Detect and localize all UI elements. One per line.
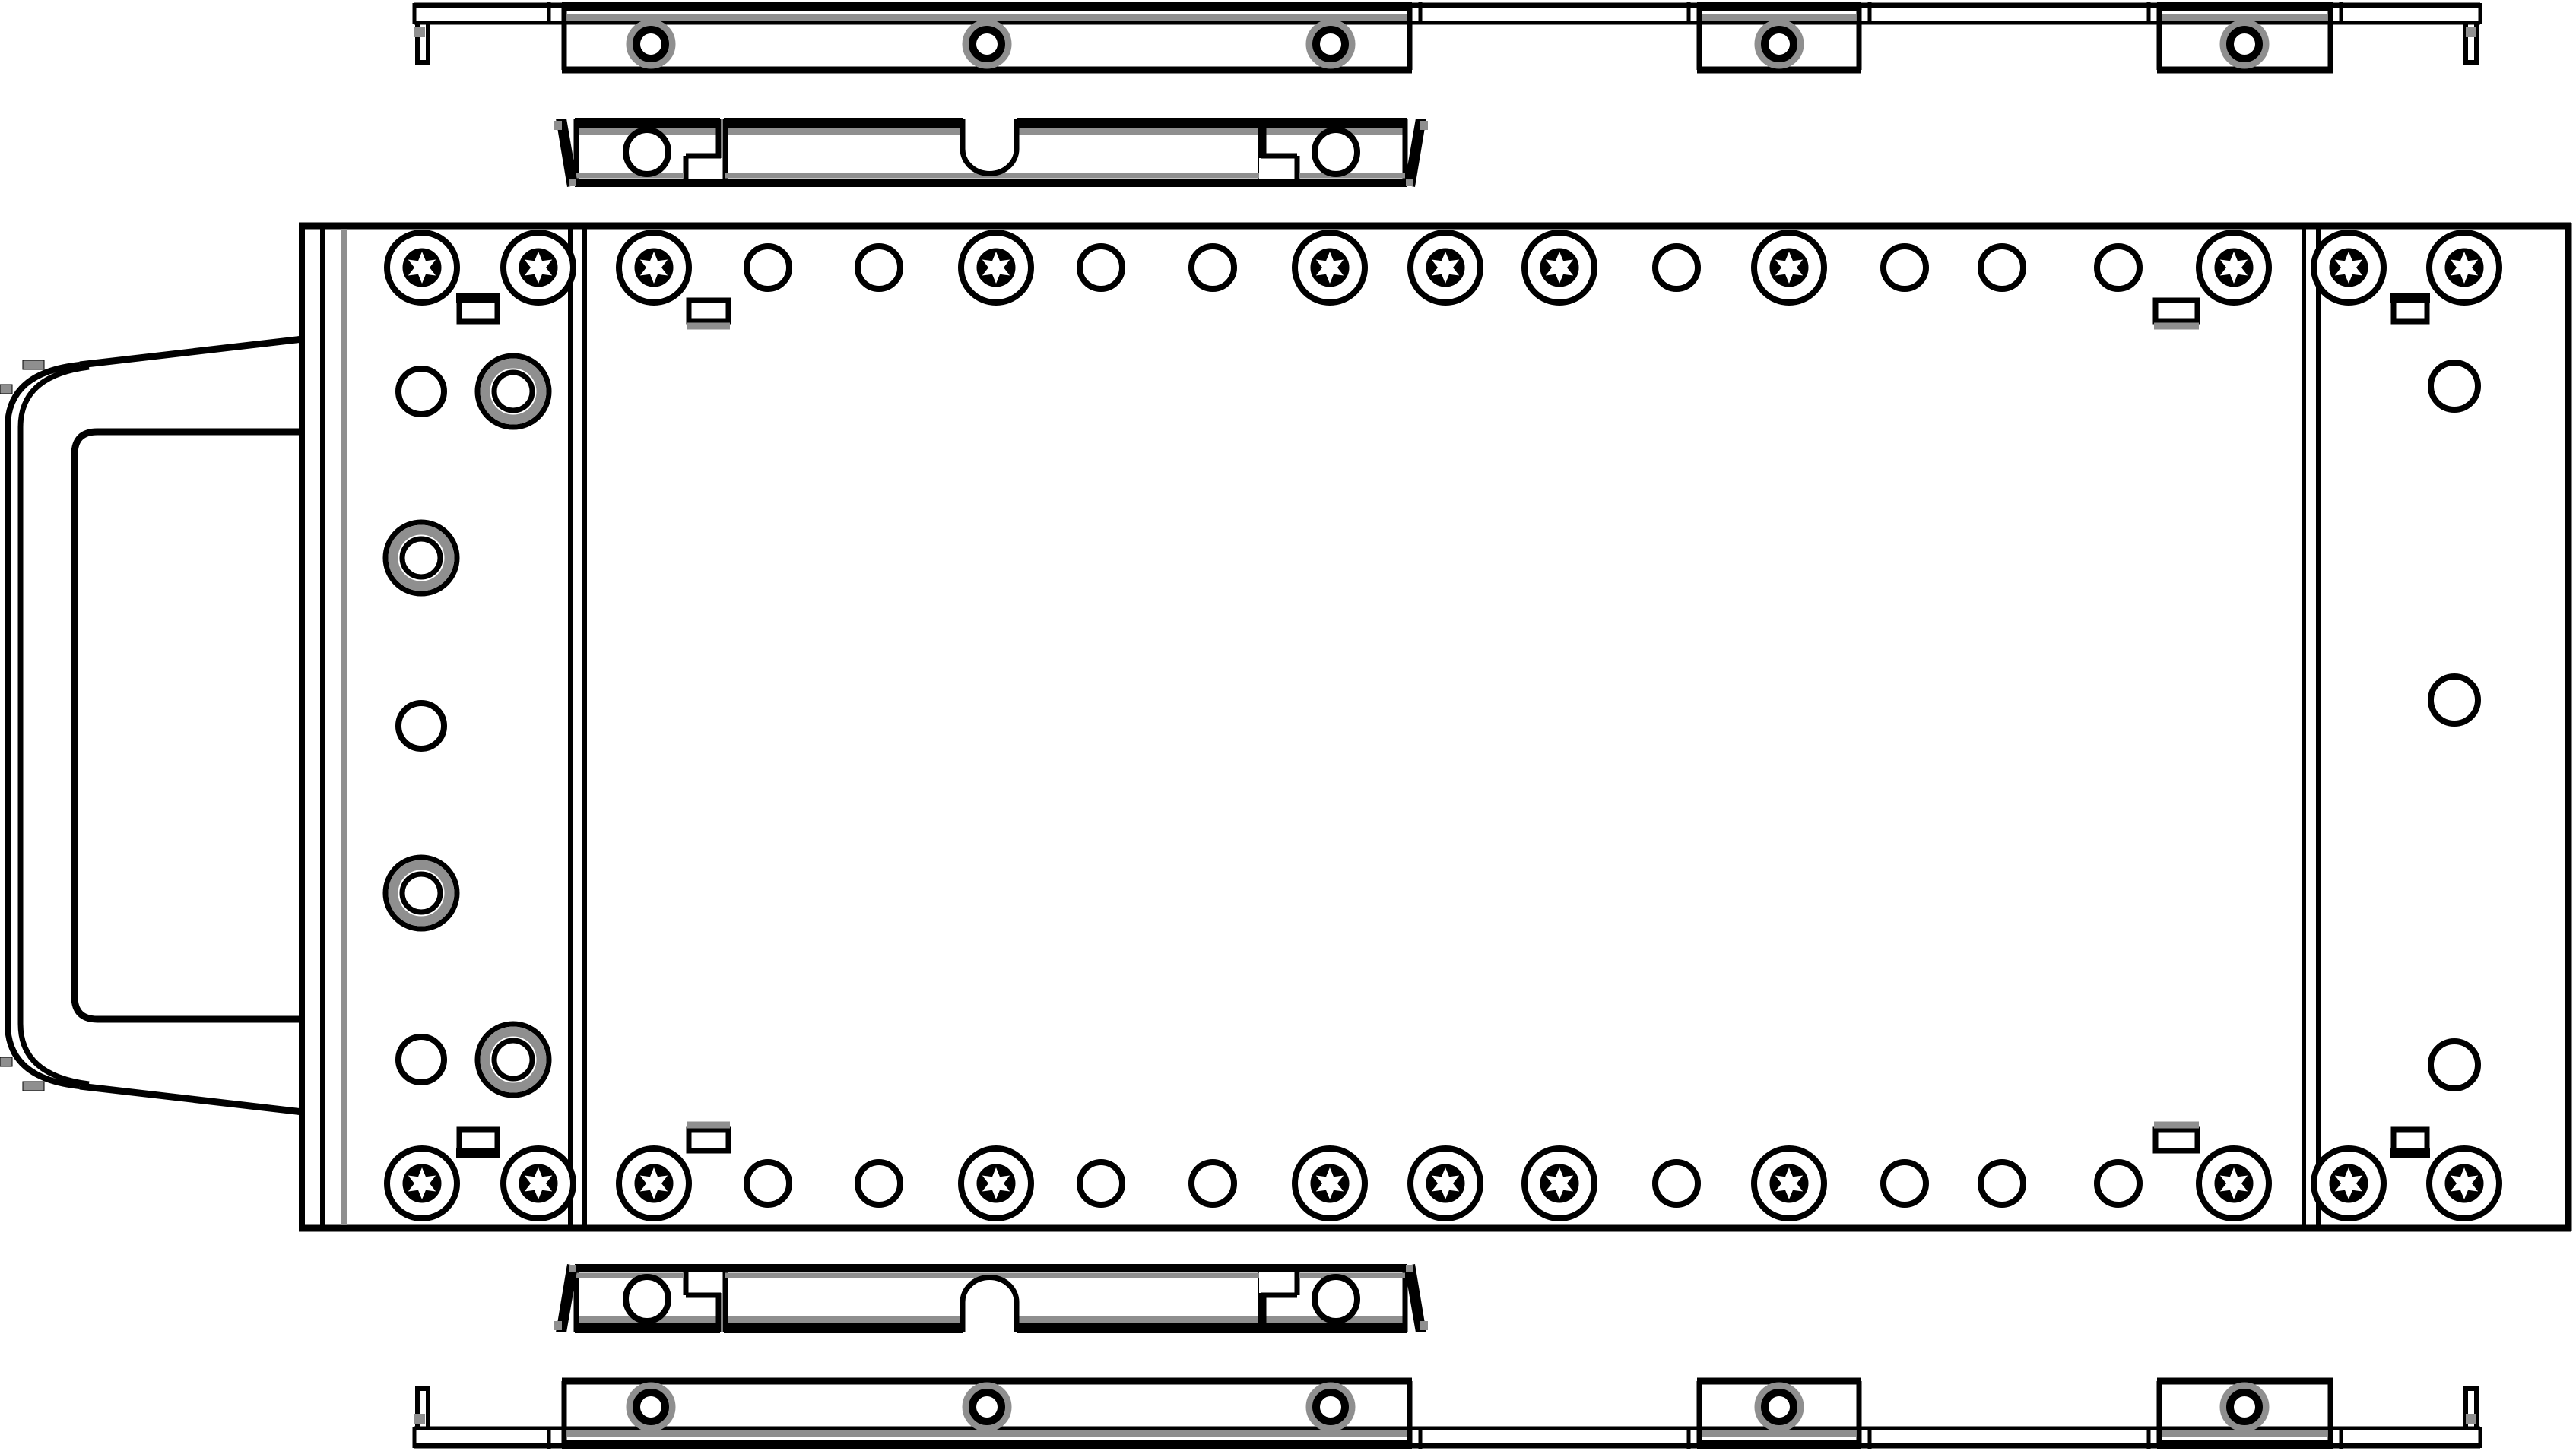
bracket-junction-tab: [687, 118, 720, 128]
torx-screw: [961, 233, 1031, 303]
bend-mark: [0, 385, 12, 394]
rail-tab-cap: [2157, 2, 2333, 11]
torx-screw: [1754, 1148, 1824, 1218]
bracket-center-plate: [724, 118, 1262, 182]
bracket-junction-tab: [1257, 1323, 1290, 1333]
torx-screw: [1524, 233, 1594, 303]
rail-grommet-bore: [972, 30, 1001, 59]
torx-screw: [2429, 1148, 2499, 1218]
torx-screw: [619, 1148, 689, 1218]
rail-grommet-bore: [1316, 30, 1345, 59]
slot-opening: [459, 300, 497, 322]
rail-tab: [1697, 2, 1861, 70]
mounting-rail: [414, 2, 2480, 70]
bracket-center-plate: [724, 1269, 1262, 1333]
rivet-hole: [1080, 246, 1122, 289]
panel-holes: [385, 356, 2478, 594]
rail-grommet-bore: [972, 1392, 1001, 1421]
rail-tab-cap: [1697, 1440, 1861, 1449]
torx-screw: [1295, 233, 1365, 303]
slot-cap: [2390, 1148, 2430, 1158]
rail-grommet: [630, 1386, 672, 1428]
bracket-cap: [724, 1323, 963, 1333]
panel-hole: [2431, 1041, 2478, 1088]
bracket-cap: [1017, 1323, 1262, 1333]
cable-slot: [456, 293, 500, 322]
boss-top-edge: [80, 339, 303, 365]
boss-bottom-edge: [80, 1086, 303, 1112]
bend-mark: [1420, 1321, 1428, 1330]
panel-hole: [398, 1037, 444, 1082]
clip-bracket: [554, 118, 1428, 187]
rail-grommet-bore: [1765, 1392, 1794, 1421]
slot-cap: [456, 1148, 500, 1158]
cable-slot: [2390, 1129, 2430, 1158]
bend-mark: [1406, 1265, 1413, 1272]
rail-grommet: [630, 23, 672, 65]
bracket-hole: [1315, 1277, 1357, 1321]
bracket-cap: [724, 118, 963, 128]
screw-row: [387, 233, 2499, 303]
torx-screw: [387, 233, 457, 303]
rail-tab-cap: [2157, 1440, 2333, 1449]
torx-screw: [1410, 1148, 1480, 1218]
rivet-hole: [858, 1162, 900, 1205]
rail-grommet: [2223, 23, 2266, 65]
rivet-hole: [858, 246, 900, 289]
rail-tab: [2157, 2, 2333, 70]
torx-screw: [503, 1148, 573, 1218]
chassis-assembly-drawing: [0, 0, 2576, 1451]
rivet-hole: [1981, 246, 2023, 289]
bend-mark: [569, 179, 576, 186]
bracket-junction-tab: [687, 1323, 720, 1333]
slot-opening: [2394, 300, 2427, 322]
rail-grommet-bore: [2230, 30, 2259, 59]
rail-grommet: [966, 1386, 1008, 1428]
grommet-bore: [402, 874, 440, 912]
bend-mark: [1420, 121, 1428, 130]
bend-mark: [554, 121, 562, 130]
rivet-hole: [747, 246, 789, 289]
grommet-bore: [494, 1041, 532, 1079]
slot-cap: [2390, 293, 2430, 303]
rivet-hole: [1655, 1162, 1698, 1205]
bend-mark: [414, 1414, 425, 1424]
step-cutout: [686, 1269, 723, 1293]
panel-hole: [398, 703, 444, 749]
boss-recess: [75, 432, 303, 1019]
rail-grommet: [1309, 1386, 1352, 1428]
rail-grommet: [2223, 1386, 2266, 1428]
rivet-hole: [1080, 1162, 1122, 1205]
rivet-hole: [747, 1162, 789, 1205]
cable-slot: [687, 1125, 730, 1151]
top-half: [385, 2, 2499, 594]
torx-screw: [2314, 233, 2384, 303]
u-notch: [963, 119, 1017, 173]
rail-grommet-bore: [2230, 1392, 2259, 1421]
cable-slot: [2154, 1125, 2199, 1151]
rail-grommet-bore: [1765, 30, 1794, 59]
bracket-hole: [626, 1277, 668, 1321]
torx-screw: [1524, 1148, 1594, 1218]
grommet-bore: [494, 372, 532, 410]
torx-screw: [619, 233, 689, 303]
cable-slot: [687, 300, 730, 326]
step-cutout: [1259, 158, 1297, 182]
slot-opening: [459, 1129, 497, 1151]
rivet-hole: [1883, 246, 1926, 289]
rivet-hole: [1191, 246, 1234, 289]
rail-grommet: [1758, 1386, 1800, 1428]
rail-tab: [2157, 1381, 2333, 1449]
rail-grommet: [1758, 23, 1800, 65]
bend-mark: [569, 1265, 576, 1272]
screw-row: [387, 1148, 2499, 1218]
torx-screw: [2199, 1148, 2269, 1218]
grommet: [477, 356, 549, 427]
center-holes: [398, 676, 2478, 749]
rail-tab-cap: [562, 1440, 1412, 1449]
rivet-hole: [1981, 1162, 2023, 1205]
grommet-bore: [402, 539, 440, 577]
grommet: [385, 522, 457, 594]
slot-opening: [2156, 300, 2197, 322]
bracket-cap: [1017, 118, 1262, 128]
bend-mark: [554, 1321, 562, 1330]
torx-screw: [2314, 1148, 2384, 1218]
panel-hole: [2431, 363, 2478, 410]
panel-hole: [398, 369, 444, 414]
step-cutout: [1259, 1269, 1297, 1293]
cable-slot: [2154, 300, 2199, 326]
bend-mark: [23, 360, 44, 369]
mounting-rail: [414, 1381, 2480, 1449]
bend-mark: [2466, 27, 2476, 37]
slot-opening: [689, 300, 728, 322]
grommet: [385, 857, 457, 929]
torx-screw: [1295, 1148, 1365, 1218]
drawing-canvas: [0, 0, 2576, 1451]
torx-screw: [2199, 233, 2269, 303]
grommet: [477, 1024, 549, 1095]
side-connector-boss: [0, 339, 303, 1112]
cable-slot: [456, 1129, 500, 1158]
rail-grommet: [1309, 23, 1352, 65]
rivet-hole: [1191, 1162, 1234, 1205]
panel-holes: [385, 857, 2478, 1095]
torx-screw: [1410, 233, 1480, 303]
rail-tab: [562, 1381, 1412, 1449]
rail-grommet-bore: [1316, 1392, 1345, 1421]
panel-hole: [2431, 676, 2478, 724]
rail-grommet-bore: [636, 30, 665, 59]
rivet-hole: [1883, 1162, 1926, 1205]
torx-screw: [961, 1148, 1031, 1218]
bracket-hole: [1315, 130, 1357, 174]
rail-tab-cap: [1697, 2, 1861, 11]
rail-grommet-bore: [636, 1392, 665, 1421]
rivet-hole: [2097, 1162, 2140, 1205]
bend-mark: [23, 1082, 44, 1091]
cable-slot: [2390, 293, 2430, 322]
torx-screw: [387, 1148, 457, 1218]
bottom-half-mirrored: [385, 857, 2499, 1449]
bend-mark: [0, 1057, 12, 1066]
torx-screw: [503, 233, 573, 303]
slot-opening: [689, 1129, 728, 1151]
torx-screw: [2429, 233, 2499, 303]
clip-bracket: [554, 1264, 1428, 1333]
rivet-hole: [1655, 246, 1698, 289]
bend-mark: [414, 27, 425, 37]
step-cutout: [686, 158, 723, 182]
boss-inner-wall: [21, 367, 89, 1084]
rail-tab: [562, 2, 1412, 70]
bend-mark: [2466, 1414, 2476, 1424]
bracket-hole: [626, 130, 668, 174]
bracket-junction-tab: [1257, 118, 1290, 128]
slot-opening: [2156, 1129, 2197, 1151]
rail-grommet: [966, 23, 1008, 65]
slot-cap: [456, 293, 500, 303]
rail-tab-cap: [562, 2, 1412, 11]
chassis-body: [299, 223, 2571, 1231]
u-notch: [963, 1278, 1017, 1332]
bend-mark: [1406, 179, 1413, 186]
rail-tab: [1697, 1381, 1861, 1449]
slot-opening: [2394, 1129, 2427, 1151]
rivet-hole: [2097, 246, 2140, 289]
torx-screw: [1754, 233, 1824, 303]
